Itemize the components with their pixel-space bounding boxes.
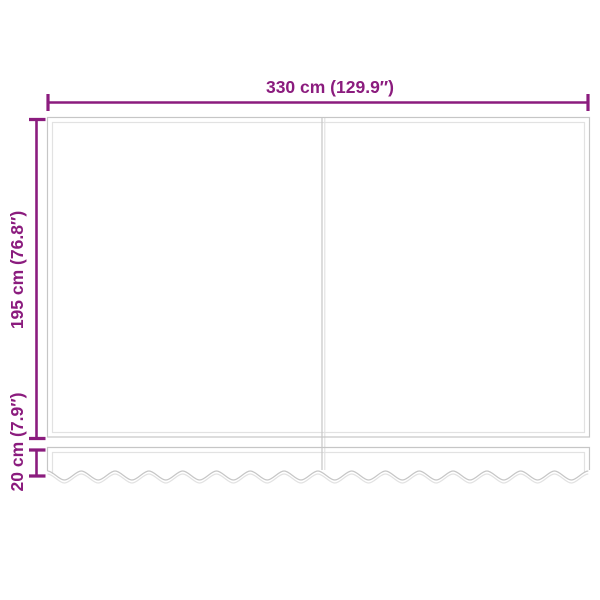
dimension-lines xyxy=(29,94,588,476)
fabric-inner-seam-lines xyxy=(48,118,589,483)
dimension-diagram: 330 cm (129.9″) 195 cm (76.8″) 20 cm (7.… xyxy=(0,0,600,600)
valance-height-dimension-label: 20 cm (7.9″) xyxy=(6,377,28,507)
height-dimension-label: 195 cm (76.8″) xyxy=(6,190,28,350)
fabric-panel-outer-border xyxy=(48,118,590,438)
fabric-outline-lines xyxy=(48,118,590,481)
width-dimension-label: 330 cm (129.9″) xyxy=(180,76,480,98)
fabric-panel-inner-border xyxy=(53,123,585,433)
valance-outer-border xyxy=(48,448,590,472)
valance-wave-outer-line xyxy=(48,471,589,480)
